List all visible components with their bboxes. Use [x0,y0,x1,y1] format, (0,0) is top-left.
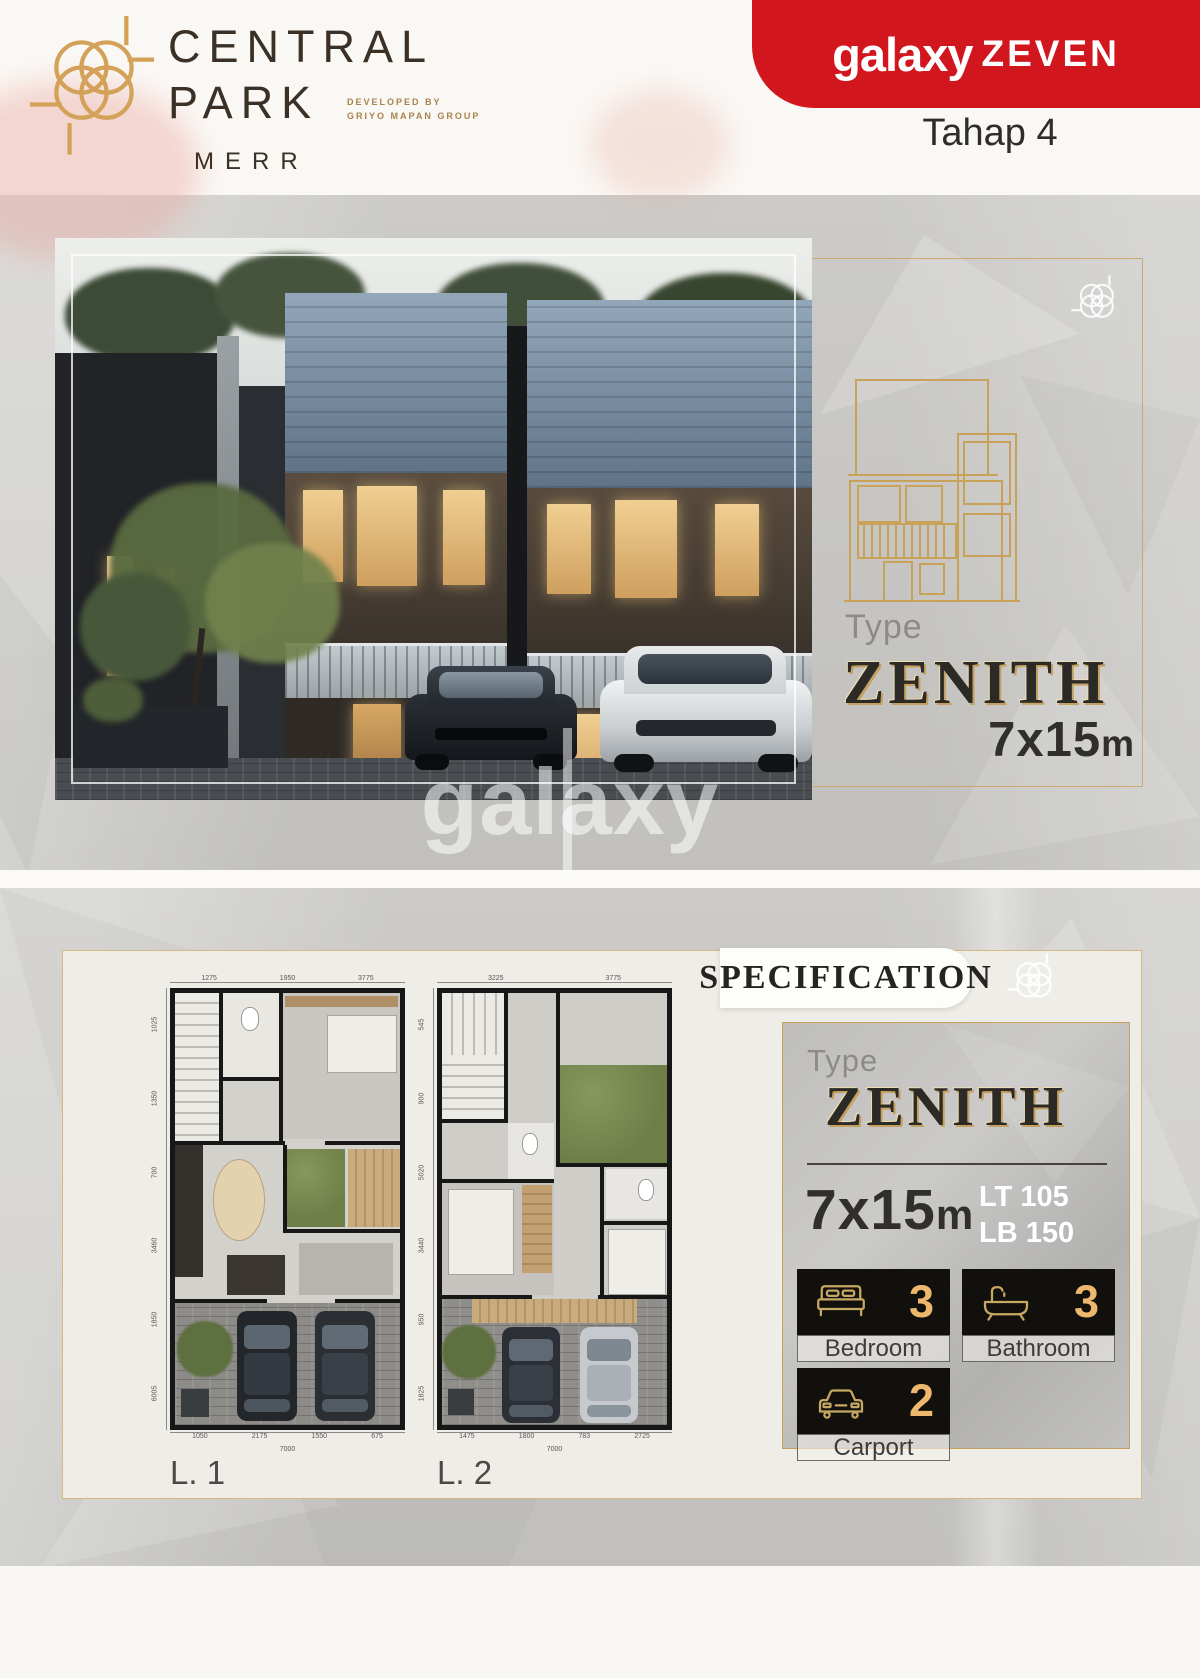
house-render-photo [55,238,812,800]
plan-planter [448,1389,474,1415]
dim-label: 545 [419,1019,426,1031]
plan-wall [279,993,283,1143]
plan2-total-width: 7000 [437,1446,672,1453]
spec-size-unit: m [936,1191,974,1238]
plan-toilet [241,1007,259,1031]
dim-label: 700 [152,1166,159,1178]
floorplan-level2 [437,988,672,1430]
bathroom-label-text: Bathroom [986,1335,1090,1363]
plan-wall [600,1167,604,1297]
plan-garden [287,1149,345,1227]
galaxy-logo-text: galaxy [832,27,972,82]
plan-stairs [175,993,219,1141]
plan-wall [442,1119,508,1123]
plan-planter [181,1389,209,1417]
dim-label: 3440 [418,1238,425,1254]
bedroom-label: Bedroom [797,1335,950,1362]
specification-heading: SPECIFICATION [699,959,993,997]
plan2-top-dimensions: 3225 3775 [437,958,672,983]
bathroom-stat-box: 3 [962,1269,1115,1335]
plan-toilet [522,1133,538,1155]
car-roof [509,1365,553,1401]
plan-wood-deck [348,1149,400,1227]
plan-wall [504,993,508,1121]
dim-label: 1800 [519,1433,535,1440]
car-windshield [509,1339,553,1361]
plan-tree [177,1321,233,1377]
dim-label: 675 [371,1433,383,1440]
plan2-label: L. 2 [437,1454,492,1492]
bathtub-icon [978,1281,1034,1323]
plan-stairs [442,993,506,1055]
plan-wall [600,1221,667,1225]
plan-wall [556,1163,667,1167]
dim-label: 3775 [605,975,621,982]
spec-size-value: 7x15 [805,1178,936,1242]
dim-label: 1825 [418,1385,425,1401]
phase-label: Tahap 4 [880,112,1100,155]
flower-logo-watermark [1004,950,1062,1008]
floorplan-level1 [170,988,405,1430]
plan-toilet [638,1179,654,1201]
car-roof [244,1353,290,1395]
dim-label: 1550 [312,1433,328,1440]
plan-desk [285,996,398,1007]
carport-stat-box: 2 [797,1368,950,1434]
pink-wash [590,90,730,200]
car-rear-window [509,1405,553,1417]
car-windshield [244,1325,290,1349]
plan-car [315,1311,375,1421]
dim-label: 3775 [358,975,374,982]
plan1-bottom-dimensions: 1050 2175 1550 675 [170,1432,405,1445]
developer-credit-line2: GRIYO MAPAN GROUP [347,110,480,124]
carport-label: Carport [797,1434,950,1461]
brand-subtitle: MERR [194,148,309,176]
section-divider [0,870,1200,888]
plan-wall [325,1141,400,1145]
plan-stairs [442,1055,506,1119]
car-roof [322,1353,368,1395]
plan-wall [219,993,223,1143]
dim-label: 1025 [151,1017,158,1033]
plan-bed [608,1229,666,1295]
house-lineart [838,372,1026,610]
plan-wall [442,1179,554,1183]
spec-type-label: Type [807,1043,878,1079]
bathroom-label: Bathroom [962,1335,1115,1362]
header-section: CENTRAL PARK DEVELOPED BY GRIYO MAPAN GR… [0,0,1200,195]
developer-credit: DEVELOPED BY GRIYO MAPAN GROUP [347,96,480,123]
car-windshield [587,1339,631,1361]
hero-size-unit: m [1101,723,1135,764]
zeven-logo-text: ZEVEN [981,33,1119,75]
plan-dining-table [213,1159,265,1241]
car-icon [813,1380,869,1422]
plan2-left-dimensions: 545 900 5020 3440 950 1825 [411,988,434,1430]
developer-credit-line1: DEVELOPED BY [347,96,480,110]
plan-tree [442,1325,496,1379]
car-rear-window [587,1405,631,1417]
hero-size: 7x15m [903,712,1135,768]
plan1-left-dimensions: 1025 1350 700 3460 1850 6005 [144,988,167,1430]
footer-white-strip [0,1566,1200,1678]
dim-label: 1050 [192,1433,208,1440]
bedroom-label-text: Bedroom [825,1335,922,1363]
brand-name-line2: PARK [168,80,319,125]
dim-label: 783 [579,1433,591,1440]
flower-logo-watermark [1068,272,1124,328]
bedroom-count: 3 [909,1276,934,1328]
dim-label: 5020 [418,1164,425,1180]
spec-type-name: ZENITH [825,1075,1067,1139]
plan-kitchen-counter [175,1145,203,1277]
brochure-page: CENTRAL PARK DEVELOPED BY GRIYO MAPAN GR… [0,0,1200,1678]
plan-wood-deck [472,1299,637,1323]
photo-inner-frame [71,254,796,784]
hero-type-name: ZENITH [843,648,1108,719]
specification-card: Type ZENITH 7x15m LT 105 LB 150 3 Bedroo… [782,1022,1130,1449]
spec-divider [807,1163,1107,1165]
dim-label: 1350 [151,1091,158,1107]
carport-count: 2 [909,1375,934,1427]
dim-label: 1850 [151,1312,158,1328]
plan2-bottom-dimensions: 1475 1800 783 2725 [437,1432,672,1445]
plan-wall [283,1145,287,1231]
car-roof [587,1365,631,1401]
plan-island [227,1255,285,1295]
dim-label: 2175 [252,1433,268,1440]
plan-car [580,1327,638,1423]
galaxy-watermark: galaxy [360,748,780,856]
dim-label: 3225 [488,975,504,982]
dim-label: 2725 [634,1433,650,1440]
hero-size-value: 7x15 [988,713,1101,767]
car-rear-window [244,1399,290,1412]
galaxy-zeven-banner: galaxy ZEVEN [752,0,1200,108]
dim-label: 1275 [201,975,217,982]
plan-wardrobe [522,1185,552,1273]
plan1-total-width: 7000 [170,1446,405,1453]
dim-label: 1950 [280,975,296,982]
plan-bed [327,1015,397,1073]
plan-wall [283,1229,400,1233]
bedroom-stat-box: 3 [797,1269,950,1335]
bed-icon [813,1281,869,1323]
dim-label: 6005 [151,1385,158,1401]
dim-label: 950 [419,1314,426,1326]
plan-wall [556,993,560,1167]
specification-heading-banner: SPECIFICATION [720,948,972,1008]
car-rear-window [322,1399,368,1412]
spec-land-area: LT 105 [979,1179,1069,1215]
plan-bathroom [606,1169,667,1219]
bathroom-count: 3 [1074,1276,1099,1328]
plan1-label: L. 1 [170,1454,225,1492]
dim-label: 3460 [151,1238,158,1254]
plan1-top-dimensions: 1275 1950 3775 [170,958,405,983]
plan-car [237,1311,297,1421]
spec-size: 7x15m [805,1177,974,1243]
brand-name-line1: CENTRAL [168,24,434,69]
plan-car [502,1327,560,1423]
hero-type-label: Type [845,608,923,647]
plan-bed [448,1189,514,1275]
carport-label-text: Carport [833,1434,913,1462]
plan-wall [219,1077,283,1081]
plan-rug [299,1243,393,1295]
centralpark-flower-logo [26,12,158,160]
spec-building-area: LB 150 [979,1215,1074,1251]
plan-roof-garden [560,1065,667,1163]
dim-label: 900 [419,1093,426,1105]
dim-label: 1475 [459,1433,475,1440]
plan-bathroom [223,993,279,1077]
car-windshield [322,1325,368,1349]
